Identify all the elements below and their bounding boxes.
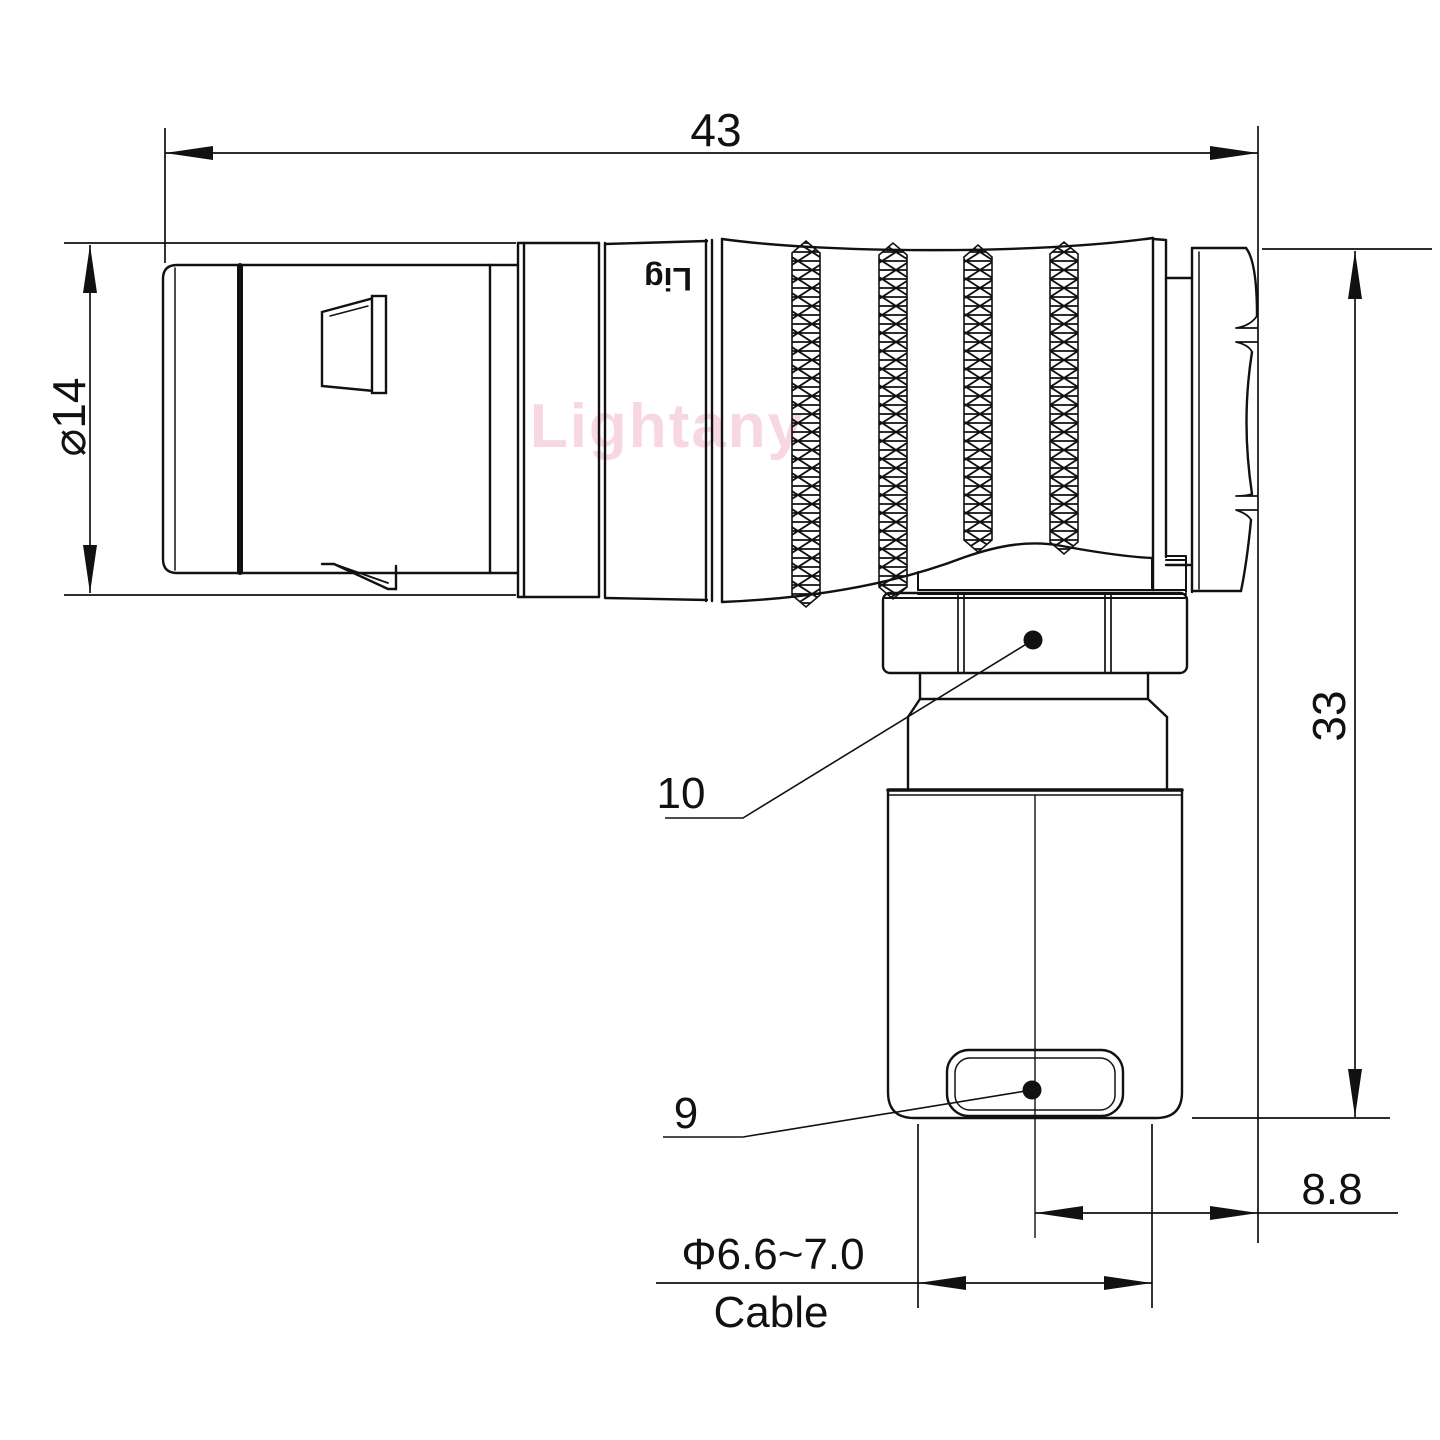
leader-lines: [663, 640, 1033, 1137]
front-diameter-text: ⌀14: [43, 378, 95, 457]
knurl-band: [879, 243, 907, 599]
dimension-lines: [64, 126, 1432, 1308]
technical-drawing-page: Lightany: [0, 0, 1440, 1440]
connector-body: [163, 238, 1257, 1118]
knurl-band: [792, 241, 820, 607]
crimp-sleeve-label: 9: [674, 1089, 698, 1138]
dimension-overall-height: [1192, 249, 1432, 1118]
cable-label-text: Cable: [714, 1288, 829, 1337]
connector-drawing-svg: Lightany: [0, 0, 1440, 1440]
nut-offset-text: 8.8: [1301, 1165, 1362, 1214]
knurl-band: [964, 245, 992, 552]
watermark-text: Lightany: [530, 392, 804, 461]
back-nut: [1166, 248, 1257, 592]
coupling-nut: [883, 593, 1187, 673]
dimension-front-diameter: [64, 243, 516, 595]
coupling-nut-label: 10: [657, 769, 706, 818]
front-release-sleeve: [163, 265, 518, 589]
elbow-neck: [918, 556, 1186, 594]
barrel-engraving-text: Lig: [644, 261, 692, 297]
keying-tab: [322, 296, 386, 393]
overall-height-text: 33: [1303, 690, 1355, 741]
bottom-notch-tab: [322, 564, 396, 589]
overall-length-text: 43: [690, 104, 741, 156]
boot-upper-section: [908, 673, 1167, 790]
knurl-band: [1050, 242, 1078, 554]
cable-diameter-text: Φ6.6~7.0: [681, 1230, 864, 1279]
